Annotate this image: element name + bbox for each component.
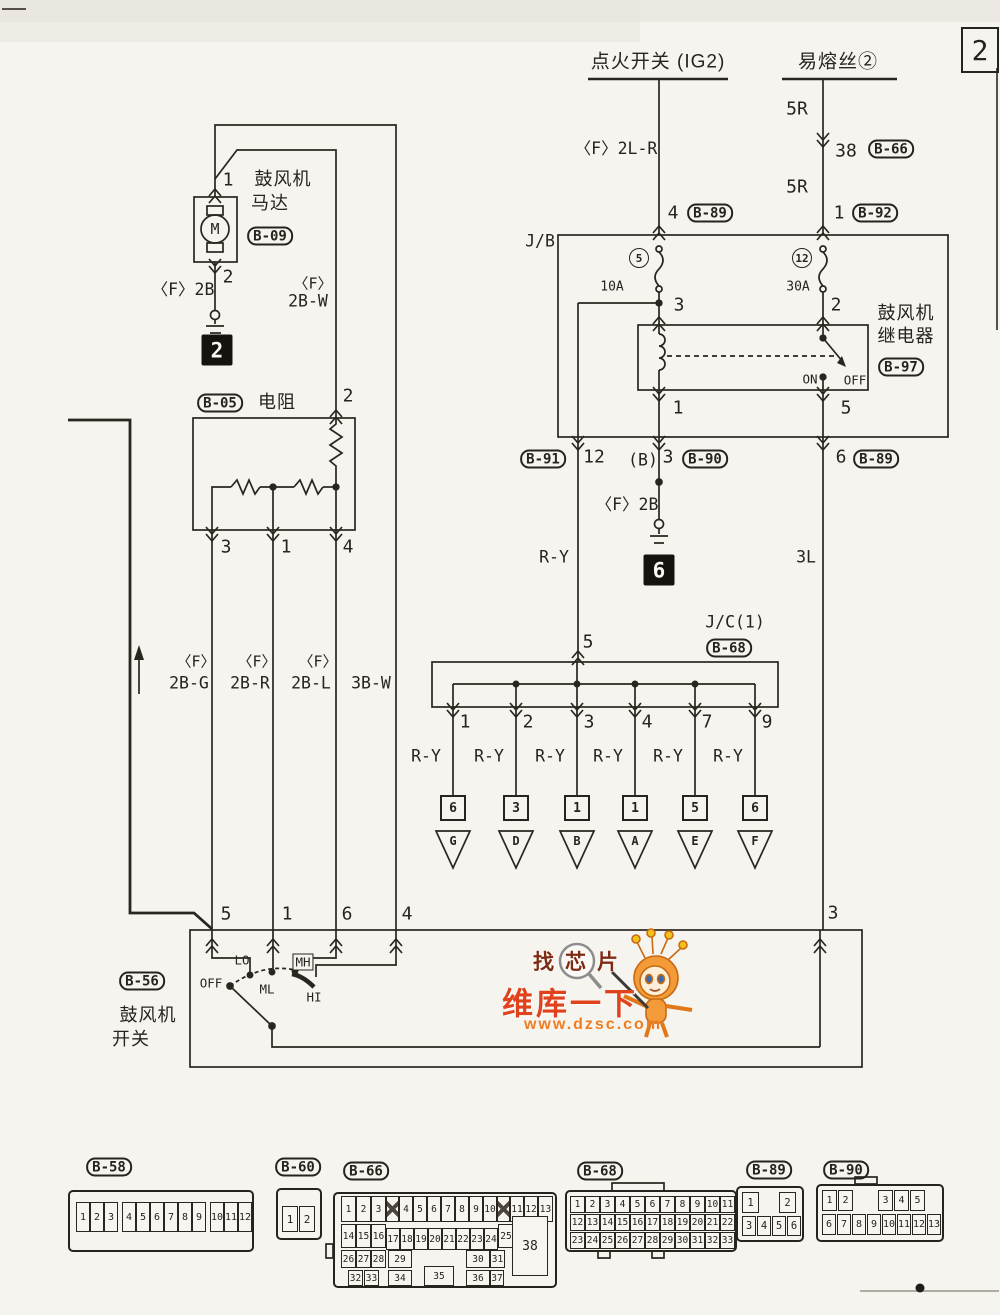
b58-pin-cell: 4 [122, 1202, 136, 1232]
switch-pin-5: 5 [221, 904, 232, 925]
b66-pin-cell: 38 [512, 1216, 548, 1276]
wire3-f: 〈F〉 [298, 651, 337, 672]
relay-off-label: OFF [844, 373, 867, 388]
jc-term-box: 6 [440, 795, 466, 821]
b66-pin-cell: 19 [414, 1228, 428, 1250]
b90-pin-cell: 3 [878, 1190, 893, 1211]
wiring-svg [0, 0, 1000, 1315]
connector-ref-b91: B-91 [520, 450, 566, 469]
b66-pin-cell: 21 [442, 1228, 456, 1250]
b58-pin-cell: 1 [76, 1202, 90, 1232]
switch-name-line2: 开关 [112, 1025, 150, 1051]
relay-name-line2: 继电器 [878, 322, 935, 348]
b90-pin-cell: 10 [882, 1214, 896, 1235]
wire4-code: 3B-W [351, 674, 391, 693]
resistor-pin-4: 4 [343, 537, 354, 558]
b66-keyway-cell-1 [386, 1196, 399, 1222]
b58-pin-cell: 7 [164, 1202, 178, 1232]
b66-pin-cell: 34 [388, 1270, 412, 1286]
b66-pin-cell: 18 [400, 1228, 414, 1250]
b68-pin-cell: 33 [720, 1232, 735, 1249]
jc-branch-pin: 7 [702, 712, 713, 733]
ignition-switch-label: 点火开关 (IG2) [591, 47, 726, 74]
b68-pin-cell: 2 [585, 1196, 600, 1213]
switch-pin-4: 4 [402, 904, 413, 925]
jc-dest-letter: D [512, 834, 519, 848]
pin-1-label: 1 [834, 203, 845, 224]
b66-pin-cell: 15 [356, 1224, 371, 1248]
b89-pin-cell: 5 [772, 1216, 786, 1236]
b90-pin-cell: 2 [838, 1190, 853, 1211]
fuse-12-rating: 30A [786, 280, 809, 295]
b60-pin-cell: 1 [282, 1206, 298, 1232]
b66-pin-cell: 1 [341, 1196, 356, 1222]
b90-pin-cell: 1 [822, 1190, 837, 1211]
b66-pin-cell: 2 [356, 1196, 371, 1222]
relay-pin-1: 1 [673, 398, 684, 419]
b68-pin-cell: 29 [660, 1232, 675, 1249]
b66-pin-cell: 16 [371, 1224, 386, 1248]
resistor-pin-1: 1 [281, 537, 292, 558]
connector-ref-b97: B-97 [878, 358, 924, 377]
jb-label: J/B [525, 232, 555, 251]
b68-pin-cell: 24 [585, 1232, 600, 1249]
b66-pin-cell: 4 [399, 1196, 413, 1222]
b58-pin-cell: 12 [238, 1202, 252, 1232]
jc-dest-letter: B [573, 834, 580, 848]
wire-3l-label: 3L [796, 548, 816, 567]
b90-pin-cell: 6 [822, 1214, 836, 1235]
b68-pin-cell: 3 [600, 1196, 615, 1213]
jb-out-pin-3: 3 [663, 447, 674, 468]
b68-pin-cell: 17 [645, 1214, 660, 1231]
b90-pin-cell: 7 [837, 1214, 851, 1235]
jc-pin-in: 5 [583, 632, 594, 653]
b66-pin-cell: 35 [424, 1266, 454, 1286]
jc-branch-wire-label: R-Y [713, 747, 743, 766]
connector-id-b68: B-68 [577, 1162, 623, 1181]
pin-4-label: 4 [668, 203, 679, 224]
b66-pin-cell: 26 [341, 1250, 356, 1268]
jb-out-pin-12: 12 [583, 447, 605, 468]
b90-pin-cell: 4 [894, 1190, 909, 1211]
wire-ry-label: R-Y [539, 548, 569, 567]
b68-pin-cell: 12 [570, 1214, 585, 1231]
b66-pin-cell: 14 [341, 1224, 356, 1248]
jc-dest-letter: A [631, 834, 638, 848]
wiring-diagram-page: 点火开关 (IG2) 易熔丝② 〈F〉2L-R 5R 38 B-66 5R 4 … [0, 0, 1000, 1315]
b68-pin-cell: 13 [585, 1214, 600, 1231]
b66-pin-cell: 8 [455, 1196, 469, 1222]
b66-pin-cell: 3 [371, 1196, 386, 1222]
switch-pos-mh: MH [292, 954, 313, 971]
b66-pin-cell: 29 [388, 1250, 412, 1268]
jb-out-b-prefix: (B) [628, 451, 658, 470]
jc-branch-wire-label: R-Y [411, 747, 441, 766]
b68-pin-cell: 8 [675, 1196, 690, 1213]
motor-symbol: M [210, 220, 219, 238]
connector-ref-b56: B-56 [119, 972, 165, 991]
b66-pin-cell: 20 [428, 1228, 442, 1250]
ground-ref-2: 2 [202, 335, 233, 366]
wire-2bw-f: 〈F〉 [293, 273, 332, 294]
connector-ref-b66: B-66 [868, 140, 914, 159]
b68-pin-cell: 7 [660, 1196, 675, 1213]
connector-id-b89: B-89 [746, 1161, 792, 1180]
jc-term-box: 5 [682, 795, 708, 821]
switch-pos-ml: ML [259, 982, 274, 997]
jc-branch-wire-label: R-Y [653, 747, 683, 766]
jc-dest-letter: E [691, 834, 698, 848]
connector-ref-b90-mid: B-90 [682, 450, 728, 469]
resistor-pin-3: 3 [221, 537, 232, 558]
b66-pin-cell: 10 [483, 1196, 497, 1222]
motor-name-line2: 马达 [251, 189, 289, 215]
jc-branch-wire-label: R-Y [474, 747, 504, 766]
connector-id-b90: B-90 [823, 1161, 869, 1180]
connector-ref-b89-top: B-89 [687, 204, 733, 223]
b66-keyway-cell-2 [497, 1196, 510, 1222]
jc-branch-wire-label: R-Y [535, 747, 565, 766]
relay-pin-5: 5 [841, 398, 852, 419]
resistor-name: 电阻 [258, 388, 296, 414]
wire2-code: 2B-R [230, 674, 270, 693]
b68-pin-cell: 22 [720, 1214, 735, 1231]
jc-term-box: 3 [503, 795, 529, 821]
connector-ref-b92: B-92 [852, 204, 898, 223]
relay-pin-3: 3 [674, 295, 685, 316]
jc-dest-letter: G [449, 834, 456, 848]
fuse-5-rating: 10A [600, 280, 623, 295]
b58-pin-cell: 11 [224, 1202, 238, 1232]
motor-pin-2: 2 [223, 267, 234, 288]
b58-pin-cell: 2 [90, 1202, 104, 1232]
b68-pin-cell: 30 [675, 1232, 690, 1249]
b68-pin-cell: 6 [645, 1196, 660, 1213]
b66-pin-cell: 22 [456, 1228, 470, 1250]
b68-pin-cell: 4 [615, 1196, 630, 1213]
b66-pin-cell: 28 [371, 1250, 386, 1268]
b89-pin-cell: 3 [742, 1216, 756, 1236]
wire-2bw-label: 2B-W [288, 292, 328, 311]
b68-pin-cell: 10 [705, 1196, 720, 1213]
b68-pin-cell: 5 [630, 1196, 645, 1213]
b89-pin-cell: 6 [787, 1216, 801, 1236]
b66-pin-cell: 31 [490, 1250, 505, 1268]
b89-pin-cell: 4 [757, 1216, 771, 1236]
wire1-code: 2B-G [169, 674, 209, 693]
relay-on-label: ON [802, 372, 817, 387]
b68-pin-cell: 16 [630, 1214, 645, 1231]
b68-pin-cell: 9 [690, 1196, 705, 1213]
fuse-5-number: 5 [629, 248, 649, 268]
b58-pin-cell: 3 [104, 1202, 118, 1232]
b58-pin-cell: 9 [192, 1202, 206, 1232]
relay-pin-2: 2 [831, 295, 842, 316]
b90-pin-cell: 9 [867, 1214, 881, 1235]
connector-ref-b89-mid: B-89 [853, 450, 899, 469]
b90-pin-cell: 13 [927, 1214, 941, 1235]
b68-pin-cell: 1 [570, 1196, 585, 1213]
motor-pin-1: 1 [223, 170, 234, 191]
b66-pin-cell: 23 [470, 1228, 484, 1250]
switch-pos-lo: LO [234, 953, 249, 968]
watermark-line1: 找芯片 [533, 946, 629, 976]
b66-pin-cell: 9 [469, 1196, 483, 1222]
b68-pin-cell: 26 [615, 1232, 630, 1249]
b66-pin-cell: 32 [348, 1270, 363, 1286]
b68-pin-cell: 31 [690, 1232, 705, 1249]
b68-pin-cell: 14 [600, 1214, 615, 1231]
b90-pin-cell: 8 [852, 1214, 866, 1235]
b66-pin-cell: 17 [386, 1228, 400, 1250]
jc-branch-pin: 3 [584, 712, 595, 733]
connector-ref-b05: B-05 [197, 394, 243, 413]
b58-pin-cell: 10 [210, 1202, 224, 1232]
connector-ref-b09: B-09 [247, 227, 293, 246]
jc-term-box: 6 [742, 795, 768, 821]
b89-pin-cell: 1 [742, 1192, 759, 1213]
b68-pin-cell: 15 [615, 1214, 630, 1231]
wire-f2b-mid-label: 〈F〉2B [596, 491, 659, 515]
b90-pin-cell: 11 [897, 1214, 911, 1235]
b66-pin-cell: 5 [413, 1196, 427, 1222]
pin-38-label: 38 [835, 141, 857, 162]
resistor-pin-2: 2 [343, 386, 354, 407]
diagram-lines [2, 9, 999, 1293]
b66-pin-cell: 7 [441, 1196, 455, 1222]
b68-pin-cell: 28 [645, 1232, 660, 1249]
b58-pin-cell: 8 [178, 1202, 192, 1232]
jc-dest-letter: F [751, 834, 758, 848]
b66-pin-cell: 33 [364, 1270, 379, 1286]
b58-pin-cell: 6 [150, 1202, 164, 1232]
switch-pin-3: 3 [828, 903, 839, 924]
b68-pin-cell: 32 [705, 1232, 720, 1249]
ground-ref-6: 6 [644, 555, 675, 586]
b66-pin-cell: 37 [490, 1270, 504, 1286]
switch-name-line1: 鼓风机 [120, 1001, 177, 1027]
wire-5r-upper-label: 5R [786, 99, 808, 120]
wire-5r-lower-label: 5R [786, 177, 808, 198]
sheet-number-box: 2 [961, 27, 999, 73]
b68-pin-cell: 18 [660, 1214, 675, 1231]
jc-branch-wire-label: R-Y [593, 747, 623, 766]
b58-pin-cell: 5 [136, 1202, 150, 1232]
jc-title: J/C(1) [705, 613, 765, 632]
b66-pin-cell: 24 [484, 1228, 498, 1250]
jc-branch-pin: 4 [642, 712, 653, 733]
jc-term-box: 1 [564, 795, 590, 821]
b66-pin-cell: 27 [356, 1250, 371, 1268]
b68-pin-cell: 21 [705, 1214, 720, 1231]
switch-pos-hi: HI [306, 990, 321, 1005]
switch-pin-6: 6 [342, 904, 353, 925]
connector-ref-b68-jc: B-68 [706, 639, 752, 658]
wire1-f: 〈F〉 [176, 651, 215, 672]
b60-pin-cell: 2 [299, 1206, 315, 1232]
switch-pin-1: 1 [282, 904, 293, 925]
b68-pin-cell: 23 [570, 1232, 585, 1249]
watermark-url: www.dzsc.com [524, 1016, 662, 1034]
jc-branch-pin: 9 [762, 712, 773, 733]
wire2-f: 〈F〉 [237, 651, 276, 672]
wire-f2b-motor-label: 〈F〉2B [152, 276, 215, 300]
jc-branch-pin: 1 [460, 712, 471, 733]
connector-id-b60: B-60 [275, 1158, 321, 1177]
b66-pin-cell: 6 [427, 1196, 441, 1222]
b68-pin-cell: 19 [675, 1214, 690, 1231]
fusible-link-label: 易熔丝② [798, 47, 878, 74]
b90-pin-cell: 12 [912, 1214, 926, 1235]
b68-pin-cell: 25 [600, 1232, 615, 1249]
jc-branch-pin: 2 [523, 712, 534, 733]
switch-pos-off: OFF [200, 976, 223, 991]
b68-pin-cell: 11 [720, 1196, 735, 1213]
b68-pin-cell: 27 [630, 1232, 645, 1249]
fuse-12-number: 12 [792, 248, 812, 268]
jc-term-box: 1 [622, 795, 648, 821]
b89-pin-cell: 2 [779, 1192, 796, 1213]
b90-pin-cell: 5 [910, 1190, 925, 1211]
wire-2lr-label: 〈F〉2L-R [575, 135, 658, 159]
connector-id-b66: B-66 [343, 1162, 389, 1181]
b66-pin-cell: 30 [466, 1250, 490, 1268]
b66-pin-cell: 36 [466, 1270, 490, 1286]
motor-name-line1: 鼓风机 [255, 165, 312, 191]
connector-id-b58: B-58 [86, 1158, 132, 1177]
wire3-code: 2B-L [291, 674, 331, 693]
jb-out-pin-6: 6 [836, 447, 847, 468]
b68-pin-cell: 20 [690, 1214, 705, 1231]
